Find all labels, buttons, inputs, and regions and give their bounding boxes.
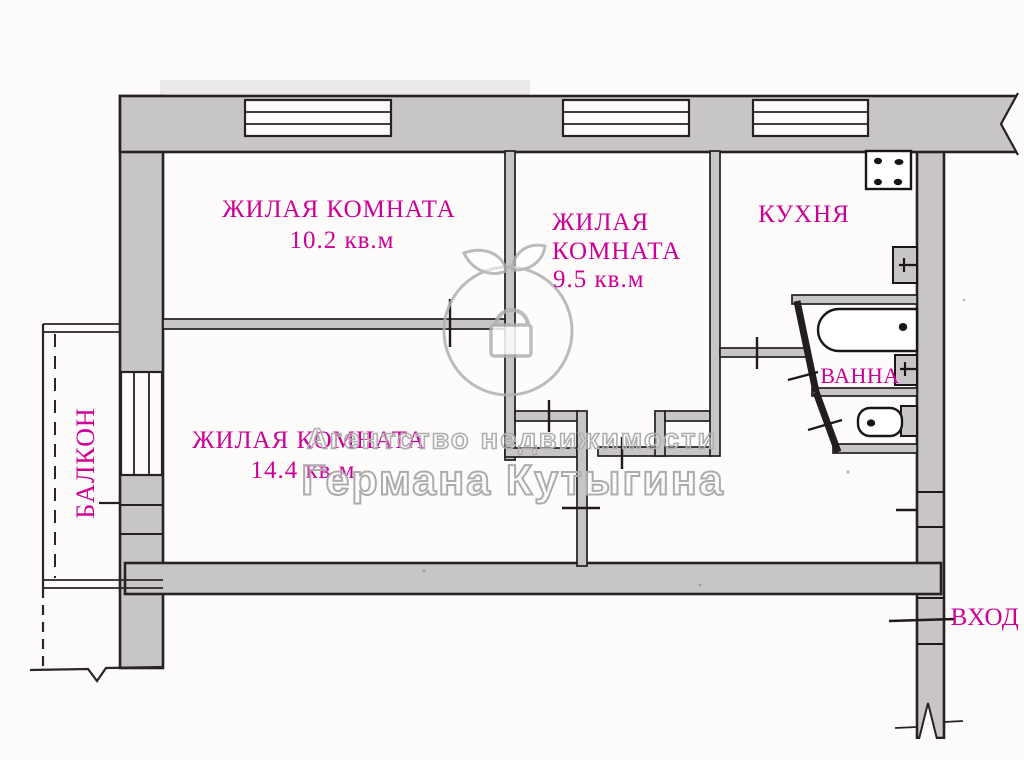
- partition-closet-top: [515, 411, 578, 421]
- label-entrance: ВХОД: [951, 604, 1020, 632]
- watermark-owner-line: Германа Кутыгина: [301, 457, 725, 506]
- label-balcony: БАЛКОН: [71, 407, 101, 518]
- partition-bath-toilet: [812, 388, 917, 396]
- window-kitchen: [753, 100, 868, 136]
- wall-bath-diagonal: [797, 301, 816, 392]
- partition-toilet-bottom: [833, 444, 917, 453]
- window-room-10-2: [245, 100, 391, 136]
- label-room2-name-line2: КОМНАТА: [552, 238, 681, 266]
- logo-leaf-left: [464, 250, 506, 273]
- label-bathroom: ВАННА: [820, 363, 899, 389]
- wall-right: [917, 138, 944, 738]
- label-kitchen: КУХНЯ: [758, 201, 850, 229]
- bathtub-icon: [818, 309, 917, 351]
- watermark-agency-line: Агентство недвижимости: [307, 424, 718, 457]
- break-tick-right: [944, 721, 963, 722]
- partition-kitchen-left: [710, 151, 720, 456]
- partition-kitchen-bottom: [720, 348, 806, 357]
- window-room-9-5: [563, 100, 689, 136]
- toilet-icon: [858, 406, 917, 436]
- partition-rooms-vertical: [505, 151, 515, 460]
- logo-leaf-right: [512, 245, 545, 270]
- break-bottom-right-mask: [915, 739, 946, 760]
- label-room2-name-line1: ЖИЛАЯ: [552, 209, 649, 237]
- partition-room1-room3: [163, 319, 505, 329]
- window-balcony: [121, 372, 162, 475]
- label-room1-area: 10.2 кв.м: [289, 227, 394, 255]
- label-room1-name: ЖИЛАЯ КОМНАТА: [222, 196, 456, 224]
- partition-closet2-top: [665, 411, 710, 421]
- stove-icon: [866, 151, 911, 189]
- break-tick-left: [895, 727, 917, 728]
- floor-plan-scan: ЖИЛАЯ КОМНАТА 10.2 кв.м ЖИЛАЯ КОМНАТА 9.…: [0, 0, 1024, 760]
- wall-bottom: [125, 563, 941, 594]
- label-room2-area: 9.5 кв.м: [553, 266, 645, 294]
- kitchen-sink-icon: [893, 247, 917, 283]
- partition-bath-top: [792, 295, 917, 304]
- logo-lock-body: [491, 325, 531, 356]
- scan-artifact: [160, 80, 530, 97]
